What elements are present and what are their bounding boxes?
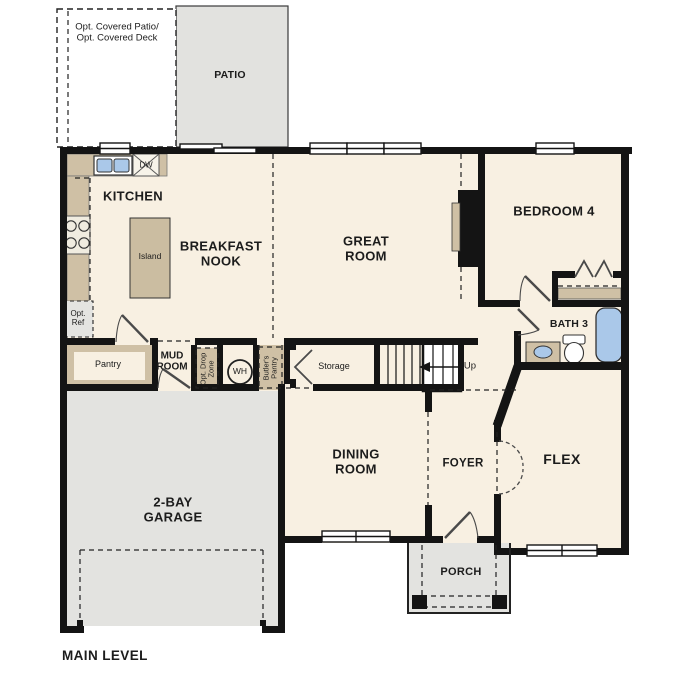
- butlers-pantry-counter: [258, 345, 284, 390]
- opt-refrigerator: [63, 301, 93, 337]
- recess-post-left: [77, 620, 83, 626]
- water-heater: [228, 360, 252, 384]
- kitchen-counter-left-lower: [67, 254, 89, 301]
- bath-sink: [534, 346, 552, 358]
- porch-post-right: [492, 595, 507, 609]
- plan-title: MAIN LEVEL: [62, 648, 148, 663]
- kitchen-sink: [94, 156, 132, 175]
- cooktop: [63, 216, 90, 254]
- bedroom4-window: [536, 143, 574, 154]
- garage-floor: [67, 391, 278, 626]
- kitchen-counter-left-upper: [67, 176, 89, 216]
- porch-post-left: [412, 595, 427, 609]
- dishwasher: [133, 154, 159, 176]
- bathtub: [596, 308, 622, 362]
- recess-post-right: [260, 620, 266, 626]
- floorplan-page: Opt. Covered Patio/ Opt. Covered Deck PA…: [0, 0, 687, 687]
- patio-area: [176, 6, 288, 147]
- toilet: [563, 335, 585, 364]
- floorplan-drawing: [0, 0, 687, 687]
- opt-covered-patio-area: [57, 9, 176, 147]
- dining-window: [322, 531, 390, 542]
- drop-zone-bench: [196, 348, 218, 388]
- fireplace-mantel: [452, 203, 460, 251]
- kitchen-window: [100, 143, 130, 154]
- kitchen-island: [130, 218, 170, 298]
- closet-shelf: [558, 288, 621, 299]
- flex-window: [527, 545, 597, 556]
- fireplace: [458, 190, 478, 267]
- great-room-windows: [310, 143, 421, 154]
